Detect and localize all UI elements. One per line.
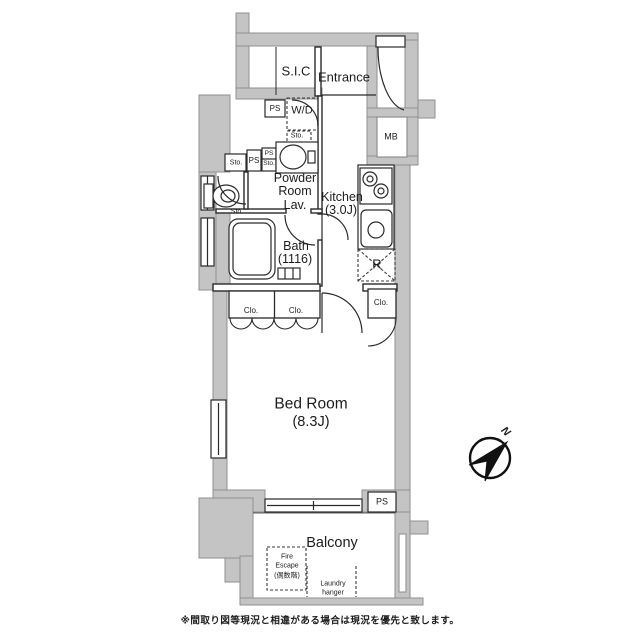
wall-segment xyxy=(410,521,428,534)
wall-segment xyxy=(395,165,410,598)
label-laundry-1: Laundry xyxy=(320,581,345,588)
closet-door-arc xyxy=(274,318,296,329)
label-closet-right: Clo. xyxy=(374,299,388,307)
room-label-bath-1: Bath xyxy=(283,240,309,253)
label-ps-bottom: PS xyxy=(376,498,388,507)
entrance-door-slab xyxy=(376,36,405,47)
room-label-balcony: Balcony xyxy=(306,536,358,551)
wall-thin xyxy=(216,209,286,213)
wall-thin xyxy=(318,240,322,286)
bath-step xyxy=(278,268,300,279)
label-closet-a: Clo. xyxy=(244,307,258,315)
label-mb: MB xyxy=(384,133,398,142)
room-label-powder-1: Powder xyxy=(274,172,316,185)
room-label-kitchen-2: (3.0J) xyxy=(325,204,357,217)
wall-segment xyxy=(213,285,227,498)
closet-door-arc xyxy=(230,318,252,329)
closet-right-door-arc xyxy=(368,318,396,346)
powder-door-arc xyxy=(322,214,348,240)
label-sto-row: Sto. xyxy=(230,160,242,167)
room-label-powder-3: Lav. xyxy=(284,199,307,212)
pipe-slot xyxy=(399,534,406,592)
wall-segment xyxy=(236,88,322,99)
label-sto-toilet: Sto. xyxy=(231,209,243,216)
label-closet-b: Clo. xyxy=(289,307,303,315)
closet-door-arc xyxy=(252,318,274,329)
bedroom-door-arc xyxy=(322,293,362,333)
floorplan-page: S.I.C Entrance PS W/D Sto. MB Sto. PS PS… xyxy=(0,0,640,640)
sink-drain xyxy=(368,222,384,238)
wall-thin xyxy=(311,209,322,213)
wall-segment xyxy=(216,211,230,285)
room-label-bath-2: (1116) xyxy=(278,253,312,266)
label-ps-row: PS xyxy=(249,157,260,165)
room-label-bedroom-1: Bed Room xyxy=(274,396,347,412)
compass-icon xyxy=(469,438,510,481)
wall-segment xyxy=(418,100,435,118)
wall-segment xyxy=(240,556,253,603)
closet-door-arc xyxy=(296,318,318,329)
closet-doors xyxy=(230,318,396,346)
wall-segment xyxy=(367,108,418,117)
label-fire-escape-1: Fire xyxy=(281,554,293,561)
label-fridge-space: R xyxy=(372,258,381,271)
label-ps-top: PS xyxy=(270,105,281,113)
room-label-entrance: Entrance xyxy=(318,71,370,84)
wall-segment xyxy=(199,498,253,558)
wall-segment xyxy=(405,40,418,110)
label-sto-under-wd: Sto. xyxy=(291,133,303,140)
washbasin-bowl xyxy=(280,145,306,169)
room-label-powder-2: Room xyxy=(278,185,311,198)
wall-segment xyxy=(240,598,423,605)
label-washer-dryer: W/D xyxy=(291,106,312,117)
bathtub-inner xyxy=(233,223,271,275)
label-laundry-2: hanger xyxy=(322,590,344,597)
entrance-door-arc xyxy=(378,47,404,110)
stove-burner-inner xyxy=(378,188,384,194)
label-fire-escape-3: (偶数階) xyxy=(274,573,300,580)
washbasin-faucet xyxy=(308,151,315,163)
toilet-tank xyxy=(204,184,213,208)
room-label-kitchen-1: Kitchen xyxy=(321,191,363,204)
stove-burner-inner xyxy=(367,176,373,182)
label-ps-sto-2: Sto. xyxy=(263,161,275,168)
wall-thin xyxy=(213,284,320,291)
footer-disclaimer: ※間取り図等現況と相違がある場合は現況を優先と致します。 xyxy=(181,616,460,626)
room-label-bedroom-2: (8.3J) xyxy=(292,415,329,430)
label-fire-escape-2: Escape xyxy=(275,563,298,570)
room-label-sic: S.I.C xyxy=(282,65,311,78)
label-ps-sto-1: PS xyxy=(265,151,274,158)
